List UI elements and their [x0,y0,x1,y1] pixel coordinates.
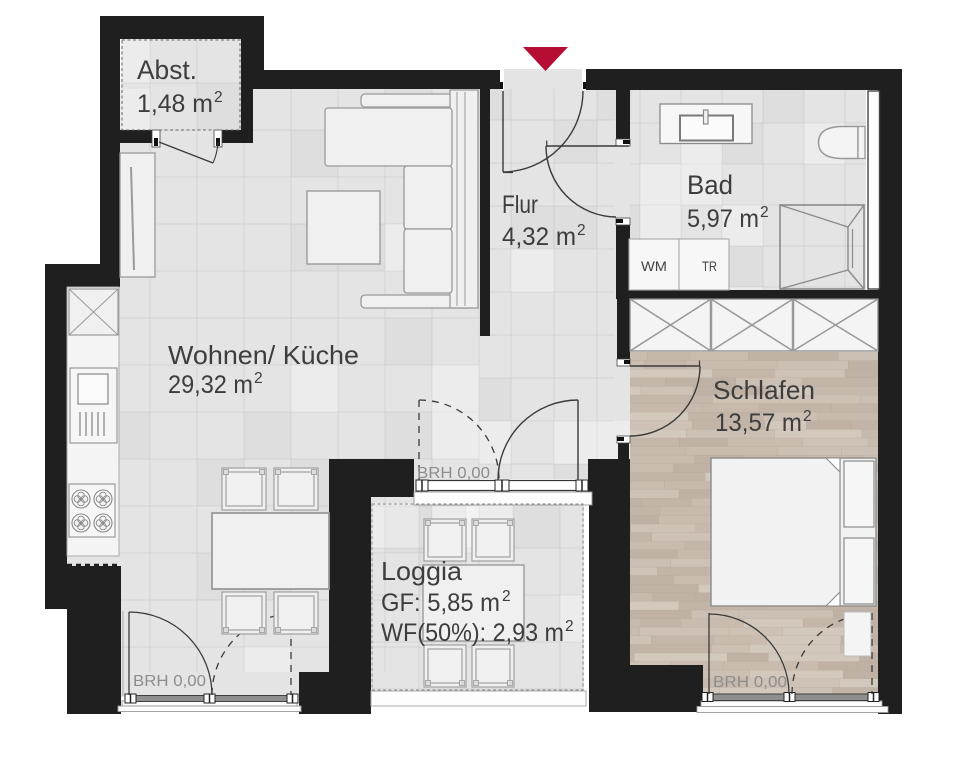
svg-text:Loggia: Loggia [381,556,463,586]
svg-text:BRH 0,00: BRH 0,00 [417,465,490,482]
svg-text:BRH 0,00: BRH 0,00 [133,673,206,690]
svg-text:Wohnen/ Küche: Wohnen/ Küche [168,340,359,370]
svg-text:13,57 m: 13,57 m [715,409,802,437]
svg-text:Bad: Bad [687,170,733,200]
svg-text:5,97 m: 5,97 m [687,205,759,233]
svg-text:2: 2 [502,588,511,605]
svg-text:Abst.: Abst. [137,55,197,85]
svg-text:29,32 m: 29,32 m [168,371,253,399]
svg-text:GF: 5,85 m: GF: 5,85 m [381,589,500,617]
svg-text:BRH 0,00: BRH 0,00 [713,674,787,691]
svg-text:2: 2 [214,89,223,106]
svg-text:Flur: Flur [502,191,538,219]
svg-text:2: 2 [254,370,263,387]
svg-text:Schlafen: Schlafen [713,375,815,405]
svg-text:2: 2 [760,204,769,221]
svg-text:2: 2 [577,222,586,239]
svg-text:2: 2 [803,408,812,425]
svg-text:WM: WM [641,258,667,274]
svg-text:4,32 m: 4,32 m [502,223,576,251]
svg-text:WF(50%): 2,93 m: WF(50%): 2,93 m [381,619,564,647]
svg-text:2: 2 [565,618,574,635]
svg-text:1,48 m: 1,48 m [137,90,213,118]
svg-text:TR: TR [702,258,717,274]
